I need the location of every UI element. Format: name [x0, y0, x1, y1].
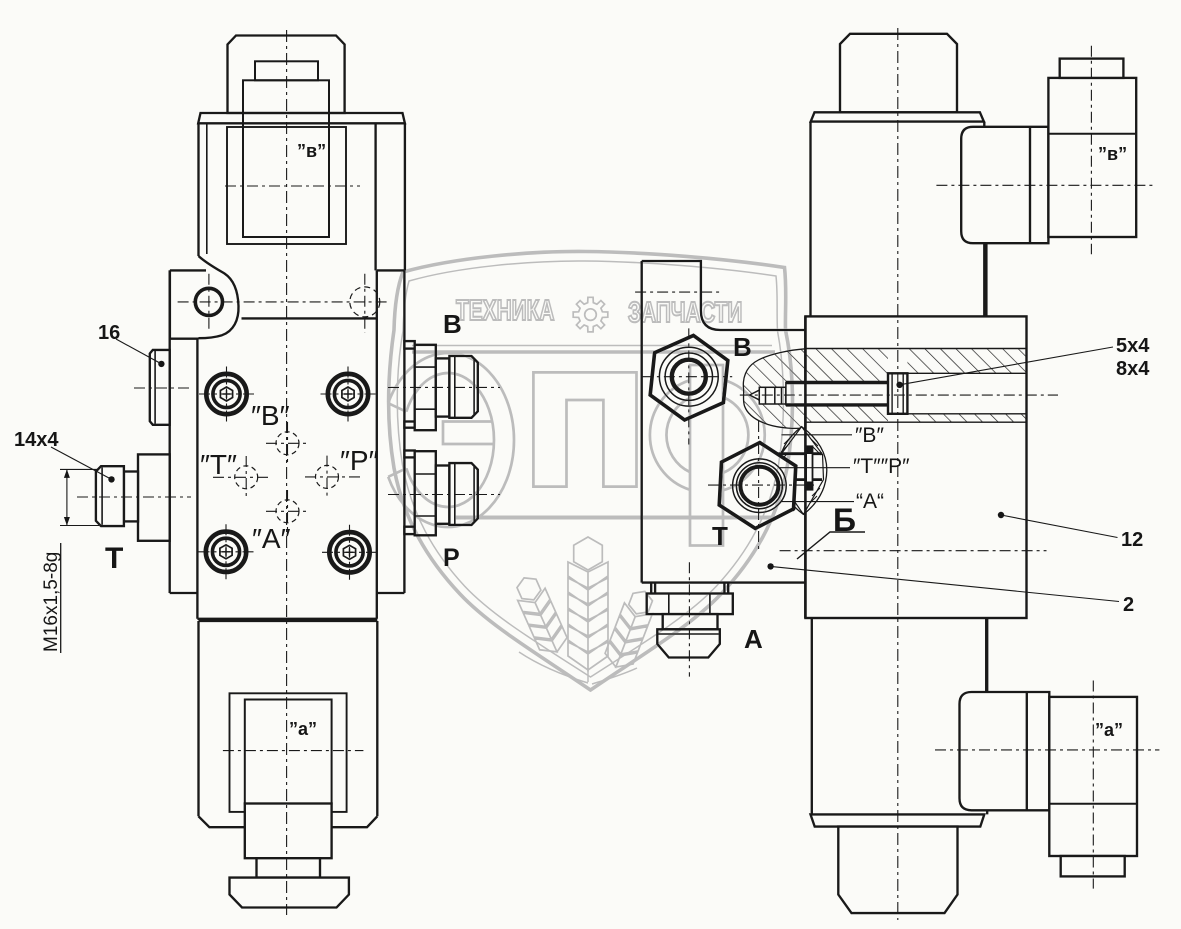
svg-text:”в”: ”в”	[1098, 144, 1127, 164]
svg-text:”в”: ”в”	[297, 141, 326, 161]
svg-text:2: 2	[1123, 594, 1134, 616]
svg-text:”а”: ”а”	[1095, 720, 1123, 740]
svg-text:5x4: 5x4	[1116, 335, 1150, 357]
svg-text:″P″: ″P″	[340, 445, 379, 476]
svg-text:”а”: ”а”	[289, 719, 317, 739]
svg-text:″B″: ″B″	[251, 400, 290, 431]
svg-text:14x4: 14x4	[14, 429, 59, 451]
svg-text:A: A	[744, 624, 763, 654]
svg-text:″A″: ″A″	[252, 523, 291, 554]
svg-text:16: 16	[98, 322, 120, 344]
svg-text:“A“: “A“	[856, 490, 884, 513]
svg-text:B: B	[733, 332, 752, 362]
svg-text:″B″: ″B″	[855, 424, 884, 447]
svg-text:M16x1,5-8g: M16x1,5-8g	[41, 552, 62, 652]
svg-text:ТЕХНИКА: ТЕХНИКА	[456, 295, 554, 327]
svg-text:″T″: ″T″	[200, 449, 237, 480]
svg-text:T: T	[105, 542, 123, 575]
svg-text:8x4: 8x4	[1116, 358, 1150, 380]
svg-text:″T″″P″: ″T″″P″	[853, 455, 910, 478]
svg-text:Б: Б	[833, 502, 856, 538]
svg-text:12: 12	[1121, 529, 1143, 551]
svg-text:ЗАПЧАСТИ: ЗАПЧАСТИ	[628, 297, 742, 329]
svg-text:P: P	[443, 544, 460, 572]
